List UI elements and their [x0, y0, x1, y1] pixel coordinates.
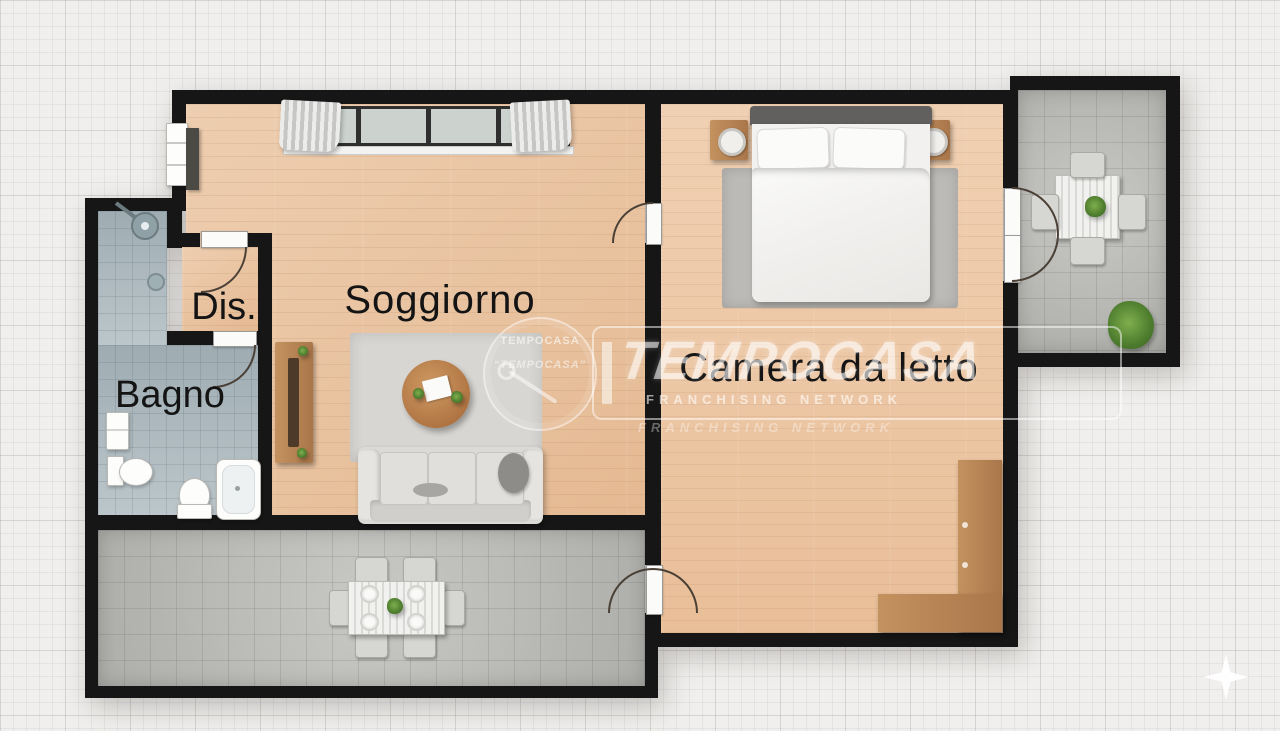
- terrace-door-arc: [609, 569, 697, 613]
- bedroom-door-arc: [613, 203, 653, 243]
- balcony-door-arc-top: [1012, 188, 1058, 234]
- room-label-bagno: Bagno: [100, 374, 240, 417]
- apartment-plan: Soggiorno Camera da letto Bagno Dis.: [0, 0, 1280, 731]
- floorplan-canvas: Soggiorno Camera da letto Bagno Dis. TEM…: [0, 0, 1280, 731]
- room-label-camera-da-letto: Camera da letto: [655, 346, 1003, 391]
- balcony-door-arc-bottom: [1012, 234, 1058, 281]
- shower-head-icon: [116, 203, 164, 290]
- door-arcs-layer: [0, 0, 1280, 731]
- room-label-soggiorno: Soggiorno: [330, 278, 550, 323]
- room-label-disimpegno: Dis.: [186, 286, 262, 329]
